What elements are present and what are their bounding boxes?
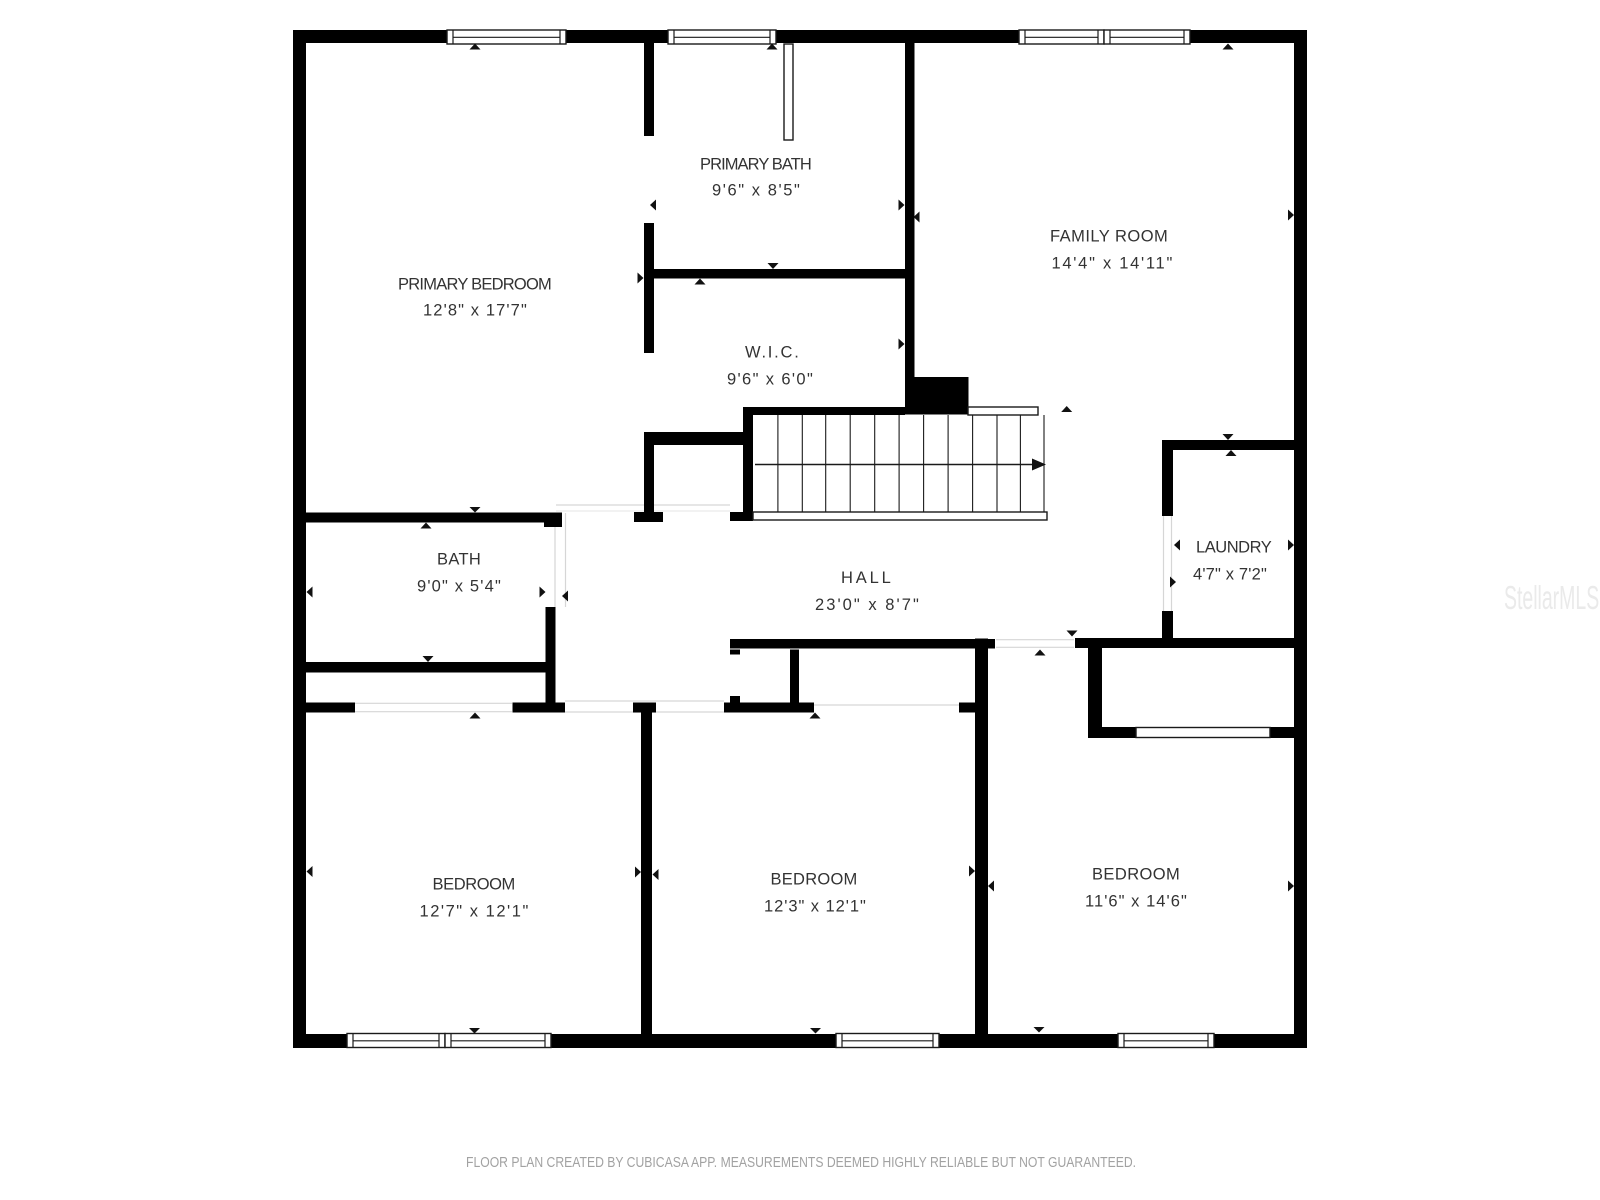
svg-text:LAUNDRY: LAUNDRY: [1196, 539, 1272, 557]
svg-text:4'7" x 7'2": 4'7" x 7'2": [1193, 566, 1267, 584]
svg-text:W.I.C.: W.I.C.: [745, 344, 799, 362]
svg-text:StellarMLS: StellarMLS: [1504, 579, 1599, 617]
svg-text:FLOOR PLAN CREATED BY CUBICASA: FLOOR PLAN CREATED BY CUBICASA APP. MEAS…: [466, 1155, 1136, 1171]
svg-text:BEDROOM: BEDROOM: [1092, 866, 1180, 884]
svg-text:PRIMARY BEDROOM: PRIMARY BEDROOM: [398, 276, 552, 294]
svg-text:PRIMARY BATH: PRIMARY BATH: [700, 156, 812, 174]
svg-text:11'6" x 14'6": 11'6" x 14'6": [1085, 893, 1187, 911]
svg-text:HALL: HALL: [841, 569, 891, 587]
svg-text:BATH: BATH: [437, 551, 481, 569]
svg-text:9'6" x 6'0": 9'6" x 6'0": [727, 371, 813, 389]
svg-text:9'0" x 5'4": 9'0" x 5'4": [417, 578, 501, 596]
svg-text:9'6" x 8'5": 9'6" x 8'5": [712, 182, 800, 200]
svg-text:BEDROOM: BEDROOM: [771, 871, 858, 889]
svg-text:BEDROOM: BEDROOM: [433, 876, 516, 894]
svg-text:12'8" x 17'7": 12'8" x 17'7": [423, 302, 527, 320]
svg-text:FAMILY ROOM: FAMILY ROOM: [1050, 228, 1168, 246]
svg-text:12'3" x 12'1": 12'3" x 12'1": [764, 898, 866, 916]
svg-text:12'7" x 12'1": 12'7" x 12'1": [420, 903, 529, 921]
